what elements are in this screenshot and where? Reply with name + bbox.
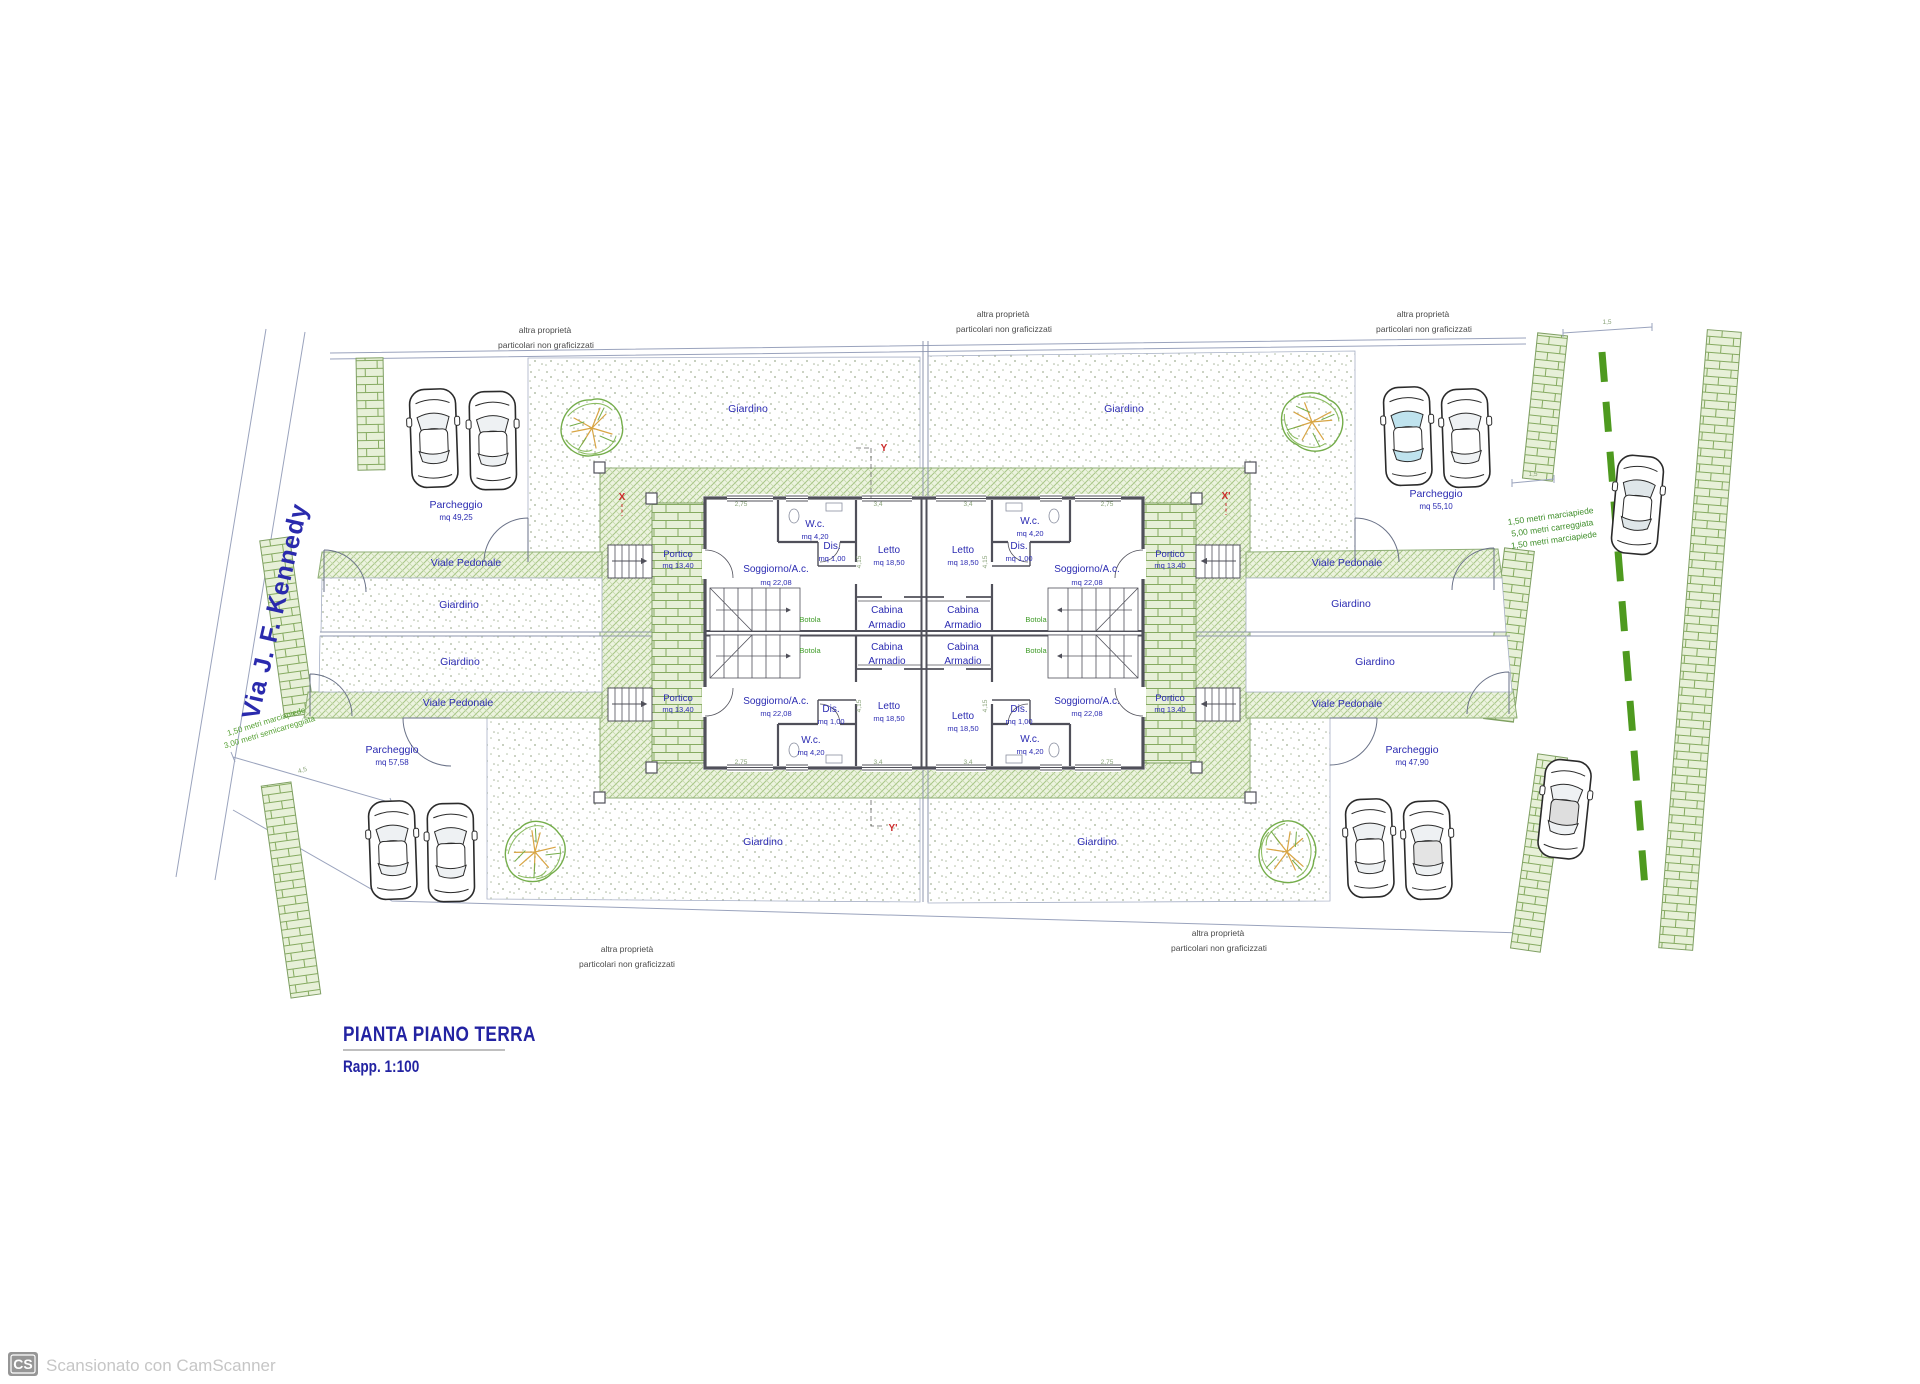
room-label-cabina: Cabina <box>871 642 903 653</box>
room-area: mq 18,50 <box>873 714 904 723</box>
room-area: mq 22,08 <box>1071 578 1102 587</box>
boundary-note: particolari non graficizzati <box>956 324 1052 334</box>
boundary-note: altra proprietà <box>977 309 1030 319</box>
garden-strip-right-1 <box>1246 578 1506 632</box>
room-area: mq 1,00 <box>817 717 844 726</box>
section-marker-x: X <box>619 492 626 503</box>
room-label-botola: Botola <box>799 615 821 624</box>
room-label-soggiorno: Soggiorno/A.c. <box>1054 564 1120 575</box>
garden-label: Giardino <box>743 836 783 848</box>
boundary-note: particolari non graficizzati <box>1376 324 1472 334</box>
portico-label: Portico <box>1155 693 1185 704</box>
room-area: mq 1,00 <box>1005 554 1032 563</box>
parking-area: mq 47,90 <box>1395 758 1429 767</box>
boundary-note: particolari non graficizzati <box>498 340 594 350</box>
room-label-botola: Botola <box>799 646 821 655</box>
wall-dimension: 3,4 <box>963 501 972 508</box>
wall-dimension: 2,75 <box>1101 501 1114 508</box>
wall-dimension: 3,4 <box>963 759 972 766</box>
portico-area: mq 13,40 <box>1154 705 1185 714</box>
room-label-letto: Letto <box>952 711 975 722</box>
boundary-note: altra proprietà <box>601 944 654 954</box>
room-area: mq 1,00 <box>1005 717 1032 726</box>
parking-area: mq 55,10 <box>1419 502 1453 511</box>
wall-dimension: 4,15 <box>982 699 989 712</box>
sidewalk-strip <box>356 358 385 470</box>
sidewalk-strip <box>1522 333 1567 481</box>
room-label-wc: W.c. <box>805 519 824 530</box>
parking-label: Parcheggio <box>1385 744 1438 756</box>
garden-label: Giardino <box>439 599 479 611</box>
boundary-note: altra proprietà <box>1397 309 1450 319</box>
room-label-dis: Dis. <box>823 541 840 552</box>
room-label-cabina: Cabina <box>947 605 979 616</box>
dimension-line <box>231 752 394 808</box>
room-area: mq 18,50 <box>947 724 978 733</box>
room-label-letto: Letto <box>878 545 901 556</box>
room-label-botola: Botola <box>1025 615 1047 624</box>
parking-label: Parcheggio <box>1409 488 1462 500</box>
section-marker-y: Y <box>881 443 888 454</box>
wall-dimension: 4,15 <box>982 555 989 568</box>
sidewalk-dimension: 1,5 <box>1528 471 1537 478</box>
walkway-label: Viale Pedonale <box>1312 698 1383 710</box>
room-label-wc: W.c. <box>801 735 820 746</box>
camscanner-badge-text: CS <box>13 1356 32 1372</box>
parking-area: mq 49,25 <box>439 513 473 522</box>
wall-dimension: 3,4 <box>873 759 882 766</box>
wall-dimension: 4,15 <box>856 699 863 712</box>
road-median-dashed-line <box>1602 352 1646 900</box>
room-area: mq 18,50 <box>947 558 978 567</box>
portico-area: mq 13,40 <box>1154 561 1185 570</box>
right-road-note: 1,50 metri marciapiede 5,00 metri carreg… <box>1507 505 1598 551</box>
wall-dimension: 2,75 <box>735 501 748 508</box>
building-footprint <box>703 496 1145 770</box>
road-dimension: 4,5 <box>297 766 308 775</box>
boundary-note: particolari non graficizzati <box>1171 943 1267 953</box>
room-label-letto: Letto <box>952 545 975 556</box>
portico-label: Portico <box>663 693 693 704</box>
room-label-cabina: Armadio <box>868 620 906 631</box>
room-label-dis: Dis. <box>1010 704 1027 715</box>
sidewalk-strip <box>261 782 320 998</box>
room-area: mq 22,08 <box>1071 709 1102 718</box>
room-label-cabina: Cabina <box>871 605 903 616</box>
left-road-note: 1,50 metri marciapiede 3,00 metri semica… <box>220 703 317 750</box>
walkway-label: Viale Pedonale <box>423 697 494 709</box>
portico-label: Portico <box>663 549 693 560</box>
room-area: mq 4,20 <box>801 532 828 541</box>
room-label-wc: W.c. <box>1020 516 1039 527</box>
garden-label: Giardino <box>1355 656 1395 668</box>
parking-area: mq 57,58 <box>375 758 409 767</box>
portico-label: Portico <box>1155 549 1185 560</box>
garden-label: Giardino <box>440 656 480 668</box>
wall-dimension: 2,75 <box>735 759 748 766</box>
room-area: mq 4,20 <box>1016 529 1043 538</box>
room-label-cabina: Armadio <box>944 656 982 667</box>
parking-label: Parcheggio <box>365 744 418 756</box>
building <box>594 462 1256 803</box>
room-area: mq 4,20 <box>797 748 824 757</box>
room-label-soggiorno: Soggiorno/A.c. <box>743 696 809 707</box>
room-label-wc: W.c. <box>1020 734 1039 745</box>
room-label-dis: Dis. <box>822 704 839 715</box>
parking-label: Parcheggio <box>429 499 482 511</box>
camscanner-watermark-text: Scansionato con CamScanner <box>46 1356 276 1375</box>
room-label-soggiorno: Soggiorno/A.c. <box>1054 696 1120 707</box>
walkway-label: Viale Pedonale <box>431 557 502 569</box>
section-marker-x-prime: X' <box>1221 491 1230 502</box>
room-label-dis: Dis. <box>1010 541 1027 552</box>
drawing-scale: Rapp. 1:100 <box>343 1058 419 1077</box>
garden-label: Giardino <box>728 403 768 415</box>
room-label-cabina: Cabina <box>947 642 979 653</box>
garden-label: Giardino <box>1331 598 1371 610</box>
room-area: mq 22,08 <box>760 578 791 587</box>
portico-left <box>652 503 705 763</box>
room-area: mq 18,50 <box>873 558 904 567</box>
site-plan-drawing: X X' Y Y' Via J. F. Kennedy altra propri… <box>0 0 1920 1384</box>
wall-dimension: 4,15 <box>856 555 863 568</box>
room-label-soggiorno: Soggiorno/A.c. <box>743 564 809 575</box>
title-block: PIANTA PIANO TERRA Rapp. 1:100 <box>343 1024 536 1077</box>
room-label-cabina: Armadio <box>944 620 982 631</box>
room-label-botola: Botola <box>1025 646 1047 655</box>
garden-label: Giardino <box>1077 836 1117 848</box>
garden-label: Giardino <box>1104 403 1144 415</box>
far-sidewalk-strip <box>1659 330 1742 951</box>
boundary-note: altra proprietà <box>1192 928 1245 938</box>
camscanner-watermark: CS Scansionato con CamScanner <box>8 1352 276 1376</box>
boundary-note: altra proprietà <box>519 325 572 335</box>
portico-right <box>1143 503 1196 763</box>
walkway-label: Viale Pedonale <box>1312 557 1383 569</box>
drawing-title: PIANTA PIANO TERRA <box>343 1024 536 1047</box>
scanned-floor-plan-page: X X' Y Y' Via J. F. Kennedy altra propri… <box>0 0 1920 1384</box>
section-marker-y-prime: Y' <box>888 823 897 834</box>
room-area: mq 22,08 <box>760 709 791 718</box>
boundary-note: particolari non graficizzati <box>579 959 675 969</box>
room-area: mq 4,20 <box>1016 747 1043 756</box>
sidewalk-dimension: 1,5 <box>1602 319 1611 326</box>
room-label-letto: Letto <box>878 701 901 712</box>
room-label-cabina: Armadio <box>868 656 906 667</box>
room-area: mq 1,00 <box>818 554 845 563</box>
wall-dimension: 2,75 <box>1101 759 1114 766</box>
wall-dimension: 3,4 <box>873 501 882 508</box>
portico-area: mq 13,40 <box>662 705 693 714</box>
portico-area: mq 13,40 <box>662 561 693 570</box>
